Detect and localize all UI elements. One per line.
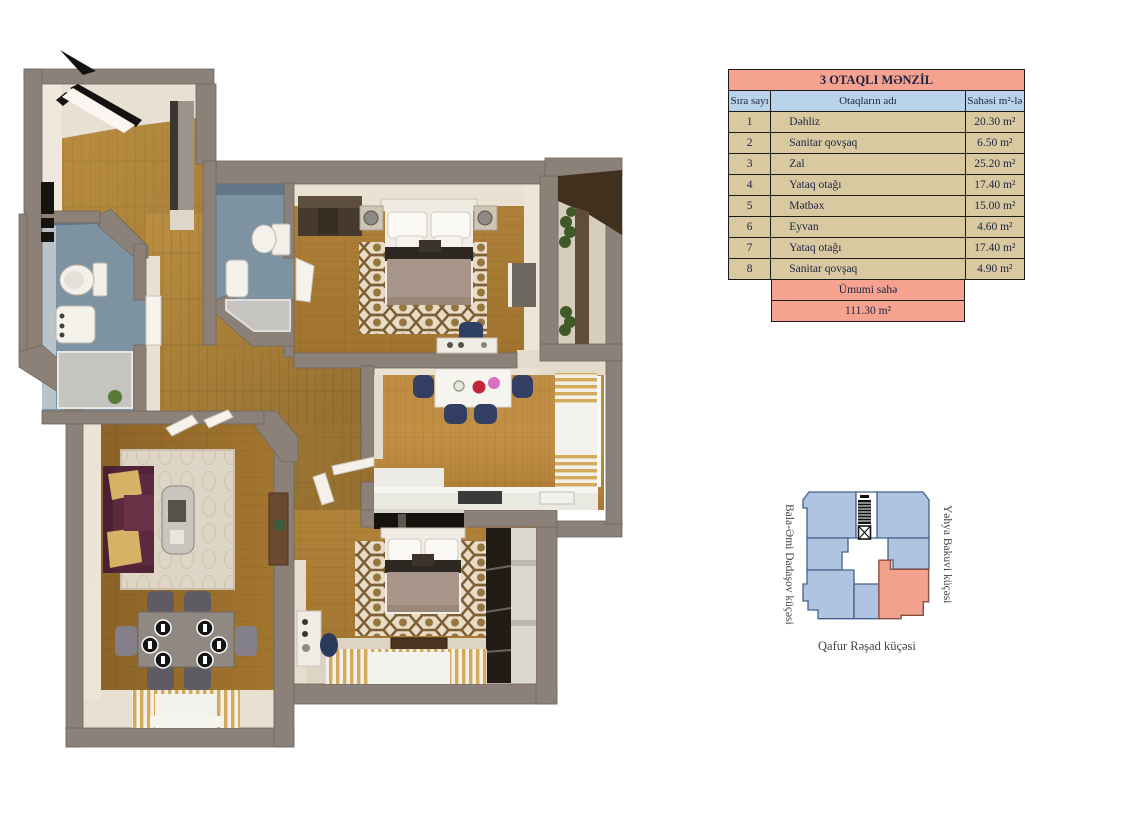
svg-text:Yəhya Bakuvi küçəsi: Yəhya Bakuvi küçəsi [941,505,953,603]
svg-text:Qafur Rəşad küçəsi: Qafur Rəşad küçəsi [818,639,916,653]
svg-text:Bala-Əmi Dadaşov küçəsi: Bala-Əmi Dadaşov küçəsi [783,504,795,625]
